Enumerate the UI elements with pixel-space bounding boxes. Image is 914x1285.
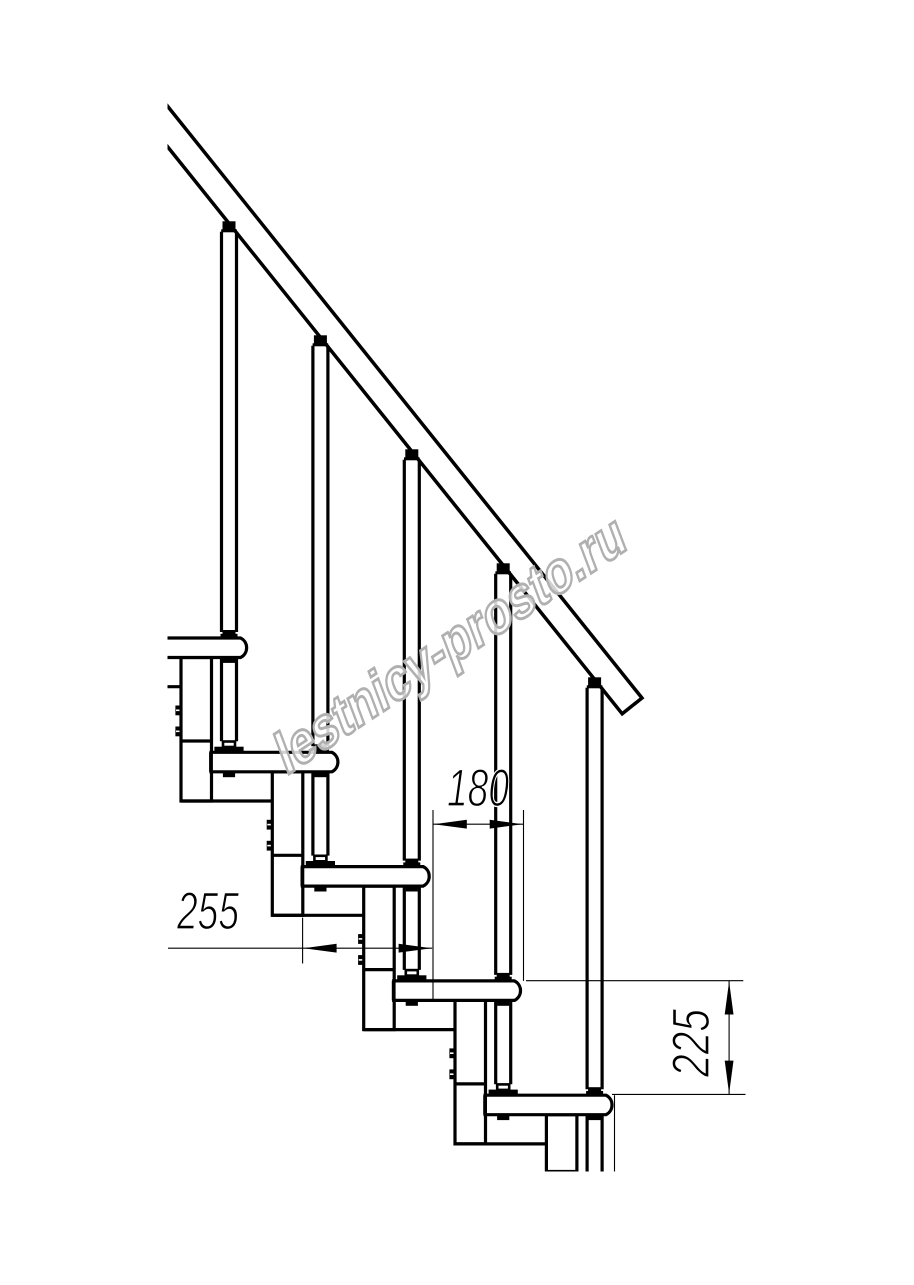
svg-text:255: 255 bbox=[176, 882, 239, 941]
svg-text:180: 180 bbox=[447, 759, 509, 818]
svg-text:225: 225 bbox=[662, 1009, 721, 1078]
